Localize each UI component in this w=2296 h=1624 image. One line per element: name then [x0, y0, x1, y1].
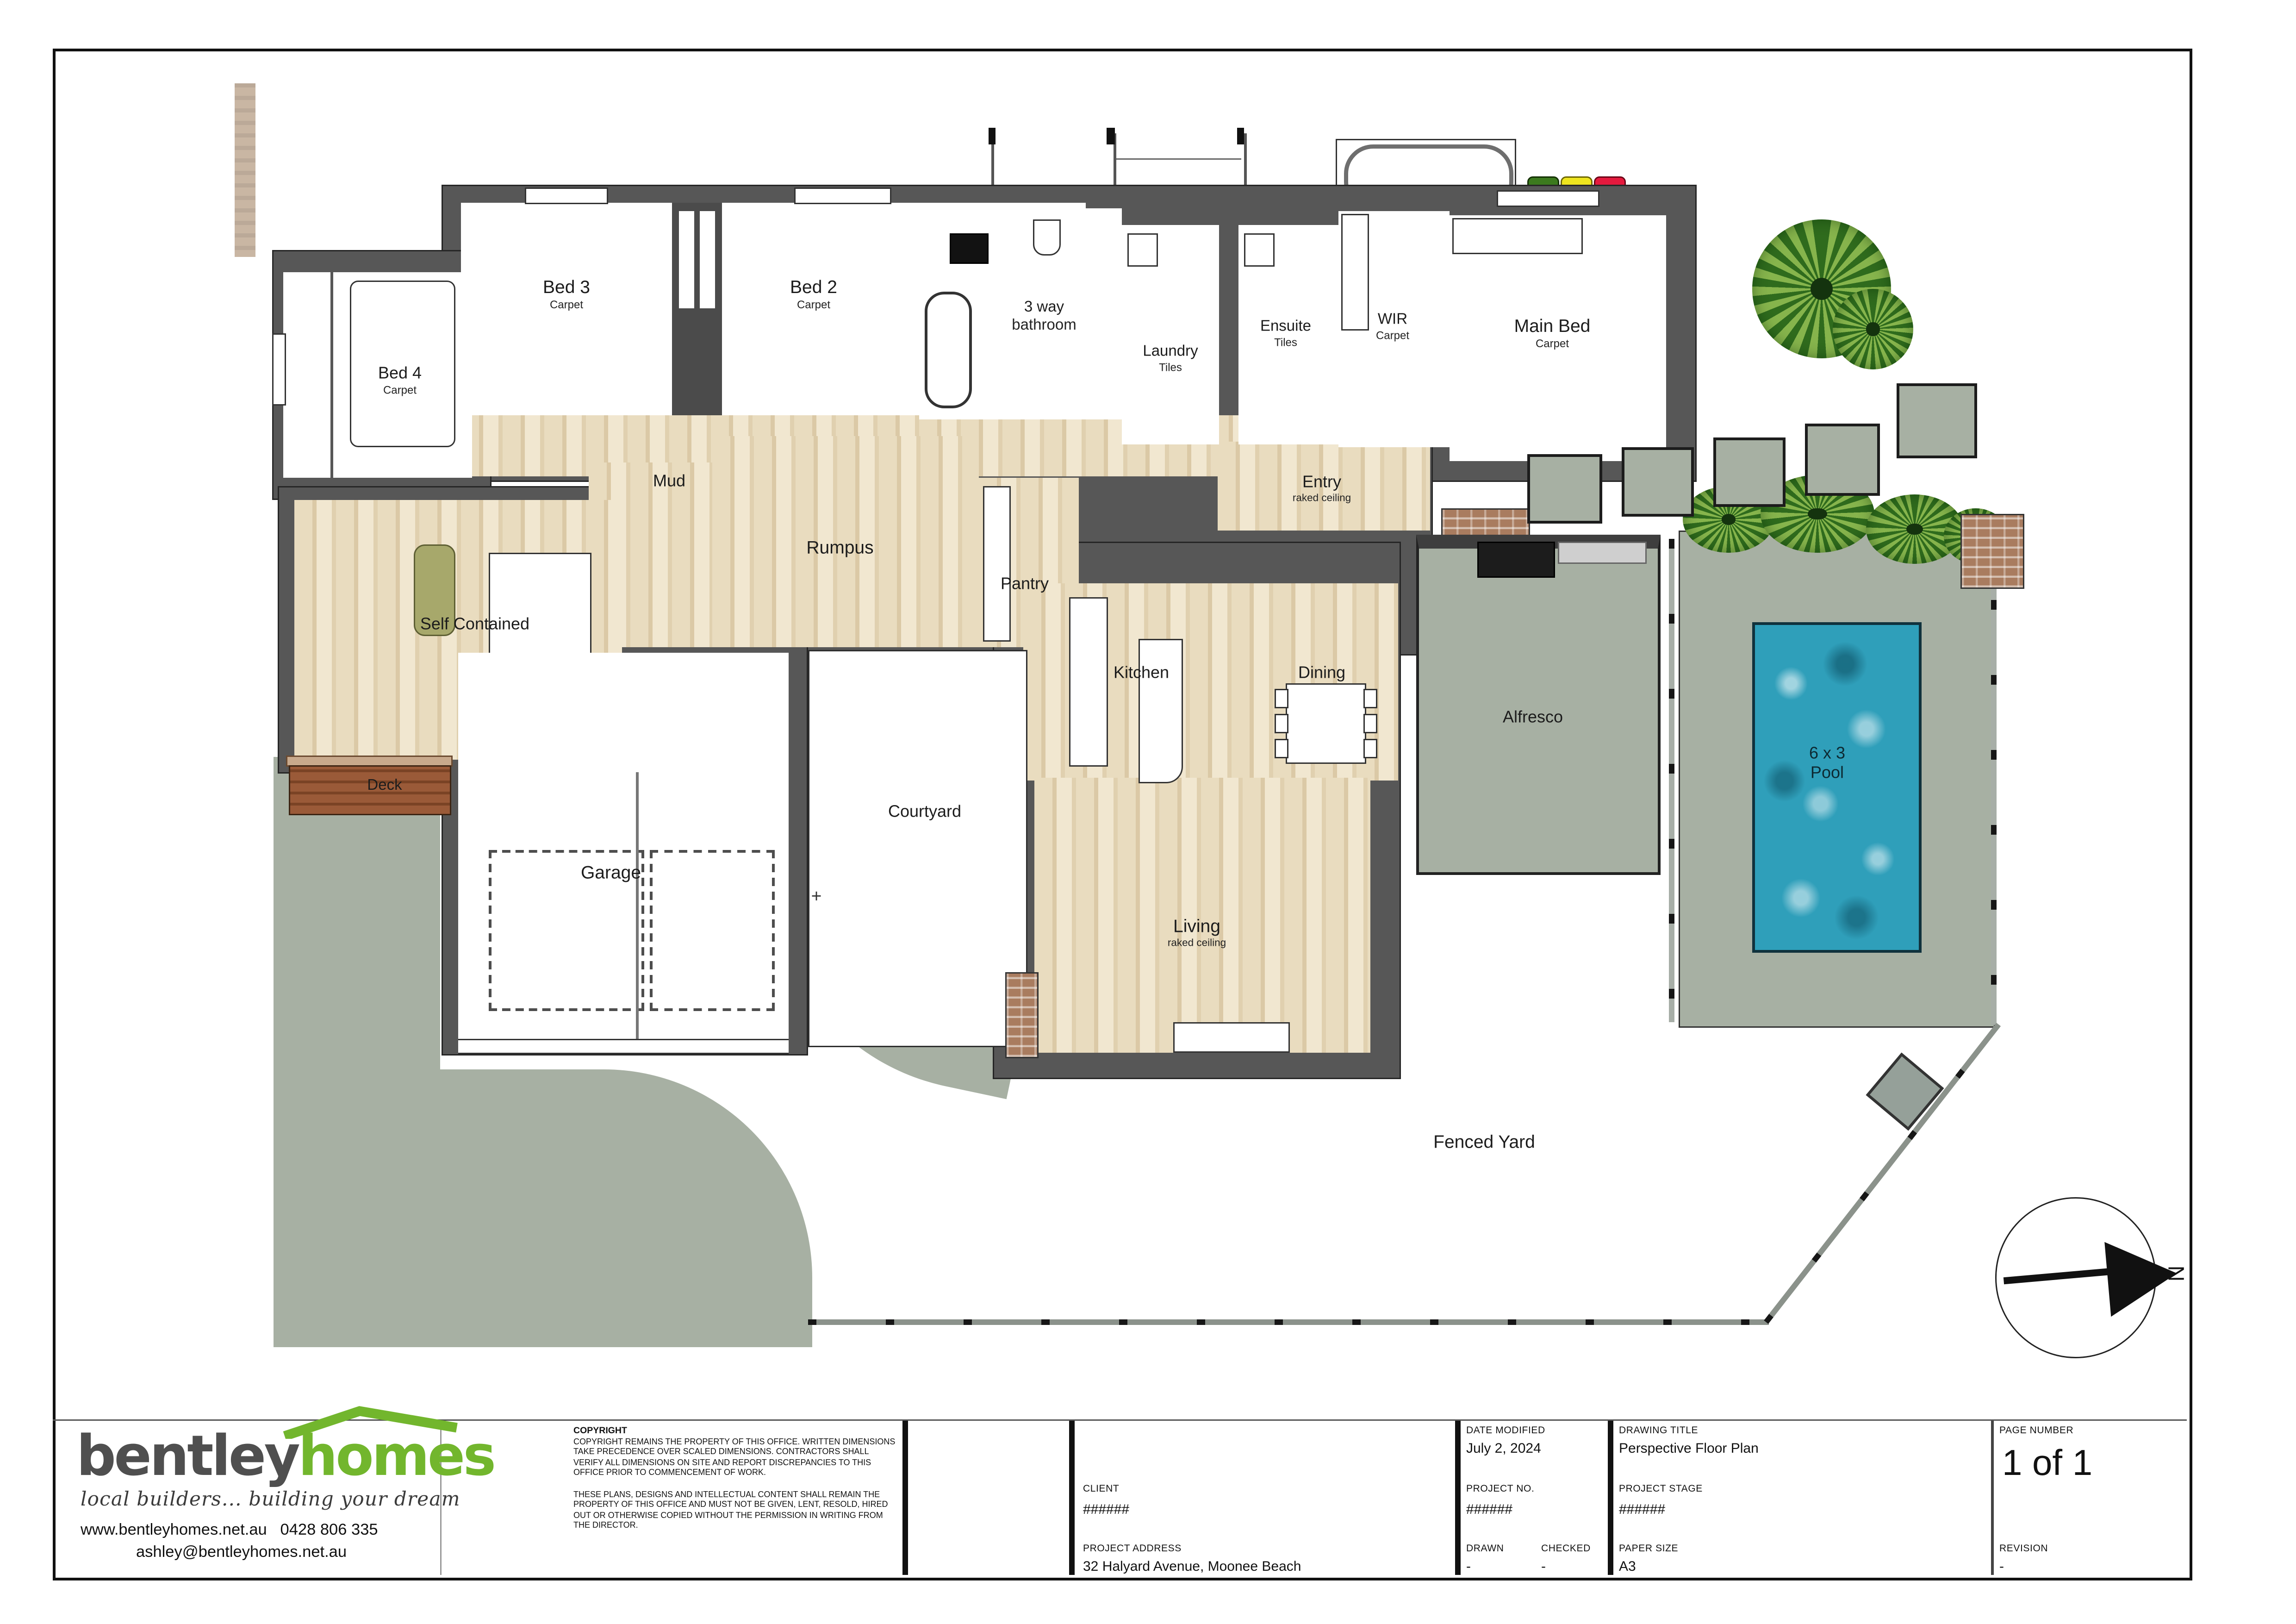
window-bathroom-dark	[950, 233, 989, 264]
titleblock-divider	[1069, 1421, 1075, 1575]
copyright-heading: COPYRIGHT	[573, 1426, 627, 1436]
kitchen-island	[1139, 639, 1183, 783]
project-address-label: PROJECT ADDRESS	[1083, 1544, 1182, 1554]
courtyard-cross: +	[811, 887, 822, 908]
room-label-garage: Garage	[581, 863, 641, 884]
pool-fence-right	[1991, 525, 1997, 1025]
room-label-courtyard: Courtyard	[888, 803, 961, 822]
window-bed2	[794, 187, 891, 204]
kitchen-bench	[1069, 597, 1108, 767]
dining-chair	[1275, 739, 1288, 758]
pool	[1752, 622, 1922, 953]
garage-door	[458, 1039, 789, 1054]
drawn-label: DRAWN	[1466, 1544, 1504, 1554]
alfresco-area	[1416, 535, 1661, 875]
bathtub-icon	[925, 292, 972, 408]
brick-pillar	[1960, 514, 2024, 589]
yard-fence-diagonal	[1764, 1023, 2001, 1324]
garage-car-space	[650, 850, 775, 1011]
room-label-bed3: Bed 3Carpet	[543, 278, 590, 311]
laundry-trough-icon	[1127, 233, 1158, 267]
ensuite-vanity-icon	[1244, 233, 1275, 267]
project-no-value: ######	[1466, 1503, 1512, 1518]
company-logo: bentleyhomes	[76, 1425, 430, 1489]
room-label-laundry: LaundryTiles	[1143, 343, 1198, 373]
project-stage-value: ######	[1619, 1503, 1665, 1518]
copyright-block: COPYRIGHT COPYRIGHT REMAINS THE PROPERTY…	[573, 1426, 896, 1533]
client-value: ######	[1083, 1503, 1129, 1518]
yard-fence-south	[808, 1319, 1769, 1325]
paver	[1805, 424, 1880, 496]
toilet-icon	[1033, 219, 1061, 256]
page-number-label: PAGE NUMBER	[1999, 1426, 2073, 1436]
pool-fence-left	[1669, 539, 1674, 1022]
drawing-title-value: Perspective Floor Plan	[1619, 1442, 1759, 1457]
wir-shelf	[1341, 214, 1369, 331]
room-label-living: Livingraked ceiling	[1168, 917, 1226, 950]
titleblock-divider	[1455, 1421, 1461, 1575]
date-modified-value: July 2, 2024	[1466, 1442, 1541, 1457]
checked-value: -	[1541, 1560, 1546, 1575]
room-label-dining: Dining	[1298, 664, 1345, 683]
dining-table	[1286, 683, 1366, 764]
logo-roof-icon	[279, 1405, 462, 1439]
north-label: N	[2161, 1266, 2186, 1282]
mainbed-robe	[1452, 218, 1583, 254]
copyright-para2: THESE PLANS, DESIGNS AND INTELLECTUAL CO…	[573, 1491, 888, 1531]
room-label-ensuite: EnsuiteTiles	[1260, 318, 1311, 348]
paper-size-value: A3	[1619, 1560, 1636, 1575]
bbq-icon	[1477, 542, 1555, 578]
room-label-wir: WIRCarpet	[1376, 311, 1409, 341]
room-label-fenced-yard: Fenced Yard	[1433, 1133, 1535, 1154]
clothesline-post	[1107, 128, 1115, 144]
drawn-value: -	[1466, 1560, 1471, 1575]
dining-chair	[1363, 689, 1377, 708]
room-label-bed4: Bed 4Carpet	[378, 365, 422, 397]
window-bed3	[525, 187, 608, 204]
room-label-pantry: Pantry	[1001, 575, 1049, 594]
titleblock-divider	[1991, 1421, 1993, 1575]
paver	[1897, 383, 1977, 458]
project-stage-label: PROJECT STAGE	[1619, 1485, 1703, 1494]
room-label-bathroom: 3 waybathroom	[1012, 299, 1076, 334]
clothesline-post	[989, 128, 996, 144]
garden-strip	[235, 83, 255, 257]
pantry-shelf	[983, 486, 1011, 642]
paver	[1713, 437, 1786, 507]
room-label-entry: Entryraked ceiling	[1293, 473, 1351, 504]
room-label-deck: Deck	[367, 777, 402, 795]
clothesline-post	[1237, 128, 1244, 144]
brick-pillar-living	[1005, 972, 1039, 1058]
revision-value: -	[1999, 1560, 2004, 1575]
date-modified-label: DATE MODIFIED	[1466, 1426, 1545, 1436]
contact-line: www.bentleyhomes.net.au 0428 806 335	[81, 1522, 378, 1539]
copyright-para1: COPYRIGHT REMAINS THE PROPERTY OF THIS O…	[573, 1438, 895, 1478]
page-number-value: 1 of 1	[2002, 1442, 2092, 1485]
website: www.bentleyhomes.net.au	[81, 1522, 267, 1539]
room-label-rumpus: Rumpus	[806, 538, 873, 559]
window-mainbed	[1497, 190, 1599, 207]
email: ashley@bentleyhomes.net.au	[136, 1544, 347, 1561]
robe-slot	[700, 211, 715, 308]
pool-gate	[1866, 1052, 1944, 1131]
courtyard-area	[808, 650, 1027, 1047]
robe-slot	[679, 211, 694, 308]
floor-bed4-ensuite	[283, 272, 330, 478]
project-address-value: 32 Halyard Avenue, Moonee Beach	[1083, 1560, 1301, 1575]
paver	[1622, 447, 1694, 517]
alfresco-bench	[1558, 542, 1647, 564]
garage-post-line	[636, 772, 639, 1039]
drawing-sheet: N Bed 3Carpet Bed 2Carpet 3 waybathroom …	[0, 0, 2296, 1624]
tv-unit	[1173, 1022, 1290, 1053]
dining-chair	[1363, 714, 1377, 733]
revision-label: REVISION	[1999, 1544, 2048, 1554]
floor-plan: N Bed 3Carpet Bed 2Carpet 3 waybathroom …	[0, 0, 2296, 1419]
room-label-alfresco: Alfresco	[1503, 708, 1563, 727]
room-label-mainbed: Main BedCarpet	[1514, 317, 1591, 350]
room-label-mud: Mud	[653, 472, 685, 491]
logo-text-bentley: bentley	[76, 1425, 298, 1489]
yard-southwest	[274, 1069, 812, 1347]
room-label-pool: 6 x 3Pool	[1809, 745, 1845, 783]
dining-chair	[1275, 689, 1288, 708]
window-bed4	[272, 333, 286, 406]
phone: 0428 806 335	[280, 1522, 378, 1539]
checked-label: CHECKED	[1541, 1544, 1591, 1554]
room-label-bed2: Bed 2Carpet	[790, 278, 837, 311]
dining-chair	[1275, 714, 1288, 733]
logo-tagline: local builders... building your dream	[81, 1489, 460, 1511]
paper-size-label: PAPER SIZE	[1619, 1544, 1678, 1554]
dining-chair	[1363, 739, 1377, 758]
titleblock-divider	[1608, 1421, 1613, 1575]
project-no-label: PROJECT NO.	[1466, 1485, 1534, 1494]
palm-plant-icon	[1833, 289, 1913, 369]
paver	[1527, 454, 1602, 524]
drawing-title-label: DRAWING TITLE	[1619, 1426, 1698, 1436]
room-label-selfcontained: Self Contained	[420, 615, 529, 634]
clothesline-wire	[1116, 158, 1241, 160]
floor-hall-nook	[1086, 208, 1122, 419]
room-label-kitchen: Kitchen	[1114, 664, 1169, 683]
titleblock-divider	[902, 1421, 908, 1575]
client-label: CLIENT	[1083, 1485, 1119, 1494]
